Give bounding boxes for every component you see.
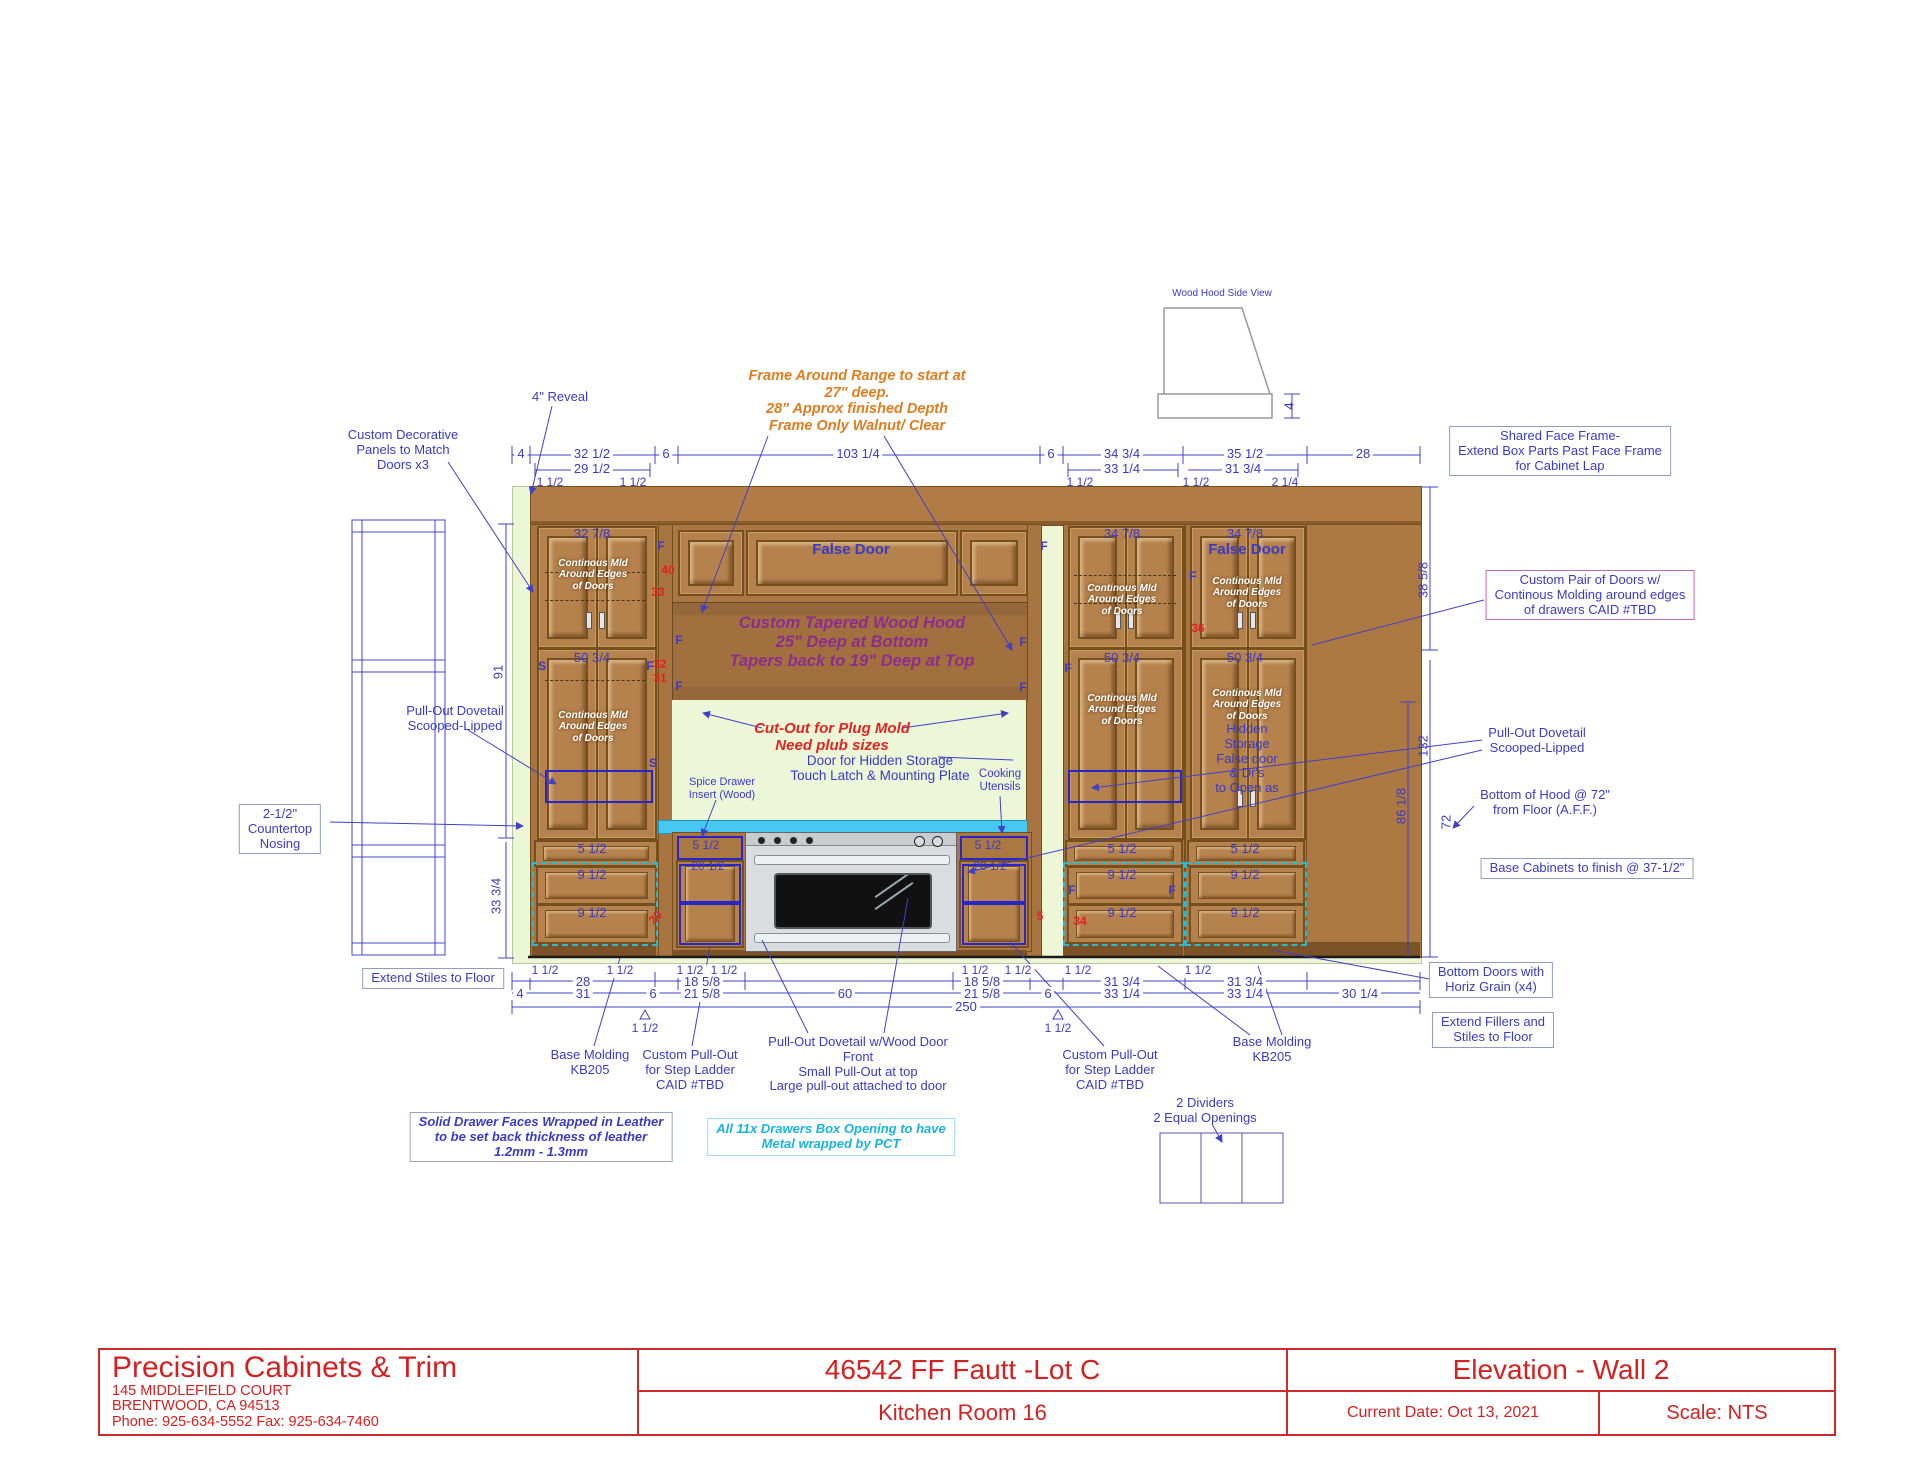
wood-hood-side-view-sketch [1158, 308, 1272, 418]
dim-total: 250 [952, 1000, 980, 1015]
dim: 6 [1041, 987, 1054, 1002]
stile-letter: F [1019, 636, 1026, 650]
door-dim: 50 3/4 [1104, 651, 1140, 666]
dim-72: 72 [1440, 815, 1455, 829]
divider-sketch [1160, 1133, 1283, 1203]
dim: 33 1/4 [1224, 987, 1266, 1002]
base-finish-note: Base Cabinets to finish @ 37-1/2" [1481, 858, 1694, 879]
continuous-molding-note: Continous Mld Around Edges of Doors [1212, 688, 1281, 722]
dim: 1 1/2 [1067, 476, 1094, 490]
continuous-molding-note: Continous Mld Around Edges of Doors [558, 710, 627, 744]
dim: 1 1/2 [537, 476, 564, 490]
dim: 6 [659, 447, 672, 462]
company-name: Precision Cabinets & Trim [112, 1352, 637, 1384]
spice-pullout-2 [679, 903, 741, 945]
false-door-label: False Door [1208, 541, 1286, 558]
countertop-nosing-note: 2-1/2" Countertop Nosing [239, 804, 321, 854]
pullout-dovetail-note-left: Pull-Out Dovetail Scooped-Lipped [406, 704, 504, 734]
pct-note: All 11x Drawers Box Opening to have Meta… [707, 1118, 955, 1156]
dim: 4 [514, 447, 527, 462]
dim: 1 1/2 [1182, 964, 1215, 978]
drawer-dim: 5 1/2 [1231, 842, 1260, 857]
extend-stiles-note: Extend Stiles to Floor [362, 968, 504, 989]
ref-num: 5 [1037, 910, 1044, 924]
range-knob [914, 836, 925, 847]
dim: 6 [1044, 447, 1057, 462]
range-knob [774, 837, 781, 844]
dim-91: 91 [492, 665, 507, 679]
dividers-note: 2 Dividers 2 Equal Openings [1153, 1096, 1256, 1126]
company-address1: 145 MIDDLEFIELD COURT [112, 1384, 637, 1400]
stile-letter: F [1064, 662, 1071, 676]
continuous-molding-note: Continous Mld Around Edges of Doors [558, 558, 627, 592]
continuous-molding-note: Continous Mld Around Edges of Doors [1087, 693, 1156, 727]
continuous-molding-note: Continous Mld Around Edges of Doors [1087, 583, 1156, 617]
scale-cell: Scale: NTS [1598, 1390, 1834, 1434]
header-panel-left [678, 530, 744, 596]
dim-132: 132 [1417, 735, 1432, 757]
drawer-dim: 20 1/2 [691, 860, 724, 874]
dim: 2 1/4 [1272, 476, 1299, 490]
title-block: Precision Cabinets & Trim 145 MIDDLEFIEL… [98, 1348, 1836, 1436]
range-knob [932, 836, 943, 847]
door-dim: 50 3/4 [574, 651, 610, 666]
hidden-door-note: Door for Hidden Storage Touch Latch & Mo… [790, 753, 969, 784]
view-cell: Elevation - Wall 2 [1286, 1350, 1834, 1390]
dim: 33 1/4 [1101, 462, 1143, 477]
dim: 29 1/2 [571, 462, 613, 477]
extend-fillers-note: Extend Fillers and Stiles to Floor [1432, 1012, 1554, 1048]
stile-letter: F [657, 540, 664, 554]
ref-num: 34 [1073, 915, 1086, 929]
dim: 33 1/4 [1101, 987, 1143, 1002]
dim: 31 3/4 [1222, 462, 1264, 477]
dim: 4 [513, 987, 526, 1002]
drawer-dim: 9 1/2 [1108, 906, 1137, 921]
false-door-label: False Door [812, 541, 890, 558]
dim: 28 [1353, 447, 1373, 462]
range-knob [806, 837, 813, 844]
ref-num: 36 [1191, 622, 1204, 636]
dim-86-18: 86 1/8 [1395, 788, 1410, 824]
dim: 103 1/4 [833, 447, 882, 462]
stile-letter: F [1189, 570, 1196, 584]
door-handle [1250, 612, 1256, 629]
utensil-pullout-2 [962, 903, 1026, 945]
right-filler-panel [1305, 524, 1422, 958]
drawing-sheet: Wood Hood Side View 4" Reveal Frame Arou… [0, 0, 1920, 1484]
drawer-dim: 5 1/2 [693, 839, 720, 853]
view-name: Elevation - Wall 2 [1453, 1354, 1670, 1386]
frame-around-range-note: Frame Around Range to start at 27" deep.… [749, 368, 966, 434]
dim: 21 5/8 [681, 987, 723, 1002]
oven-lower-bar [754, 933, 950, 943]
drawer-dim: 5 1/2 [975, 839, 1002, 853]
false-door-panel [746, 530, 958, 596]
spice-drawer-note: Spice Drawer Insert (Wood) [689, 776, 755, 801]
dim: 1 1/2 [604, 964, 637, 978]
stile-letter: F [1068, 884, 1075, 898]
dim: 1 1/2 [529, 964, 562, 978]
shelf-line [545, 680, 645, 681]
dim-33-34: 33 3/4 [490, 878, 505, 914]
dim: 60 [835, 987, 855, 1002]
dim: 35 1/2 [1224, 447, 1266, 462]
col1-lower-door-right [1125, 648, 1184, 840]
range [745, 832, 957, 952]
dim: 32 1/2 [571, 447, 613, 462]
dim: 1 1/2 [1183, 476, 1210, 490]
stile-letter: F [1019, 681, 1026, 695]
hidden-storage-note: Hidden Storage False door & Dr's to Open… [1215, 722, 1279, 796]
job-cell: 46542 FF Fautt -Lot C [637, 1350, 1286, 1390]
bottom-of-hood-note: Bottom of Hood @ 72" from Floor (A.F.F.) [1480, 788, 1610, 818]
door-handle [1237, 612, 1243, 629]
company-address2: BRENTWOOD, CA 94513 [112, 1399, 637, 1415]
shared-face-frame-note: Shared Face Frame- Extend Box Parts Past… [1449, 426, 1671, 476]
drawer-dim: 20 1/2 [973, 860, 1006, 874]
hood-depth-dim: 4 [1283, 402, 1298, 409]
drawer-dim: 9 1/2 [1231, 906, 1260, 921]
dim: 1 1/2 [620, 476, 647, 490]
drawer-dim: 9 1/2 [1231, 868, 1260, 883]
shelf-line [545, 600, 645, 601]
drawer-dim: 9 1/2 [578, 868, 607, 883]
dim: 31 [573, 987, 593, 1002]
dim: 6 [646, 987, 659, 1002]
reveal-label: 4" Reveal [532, 390, 588, 405]
dim: 1 1/2 [1002, 964, 1035, 978]
pullout-dovetail-note-right: Pull-Out Dovetail Scooped-Lipped [1488, 726, 1586, 756]
custom-decorative-note: Custom Decorative Panels to Match Doors … [348, 428, 459, 472]
bottom-doors-note: Bottom Doors with Horiz Grain (x4) [1429, 962, 1553, 998]
dovetail-wood-door-note: Pull-Out Dovetail w/Wood Door Front Smal… [768, 1035, 948, 1094]
ref-num: 33 [651, 586, 664, 600]
hood-note: Custom Tapered Wood Hood 25" Deep at Bot… [729, 614, 974, 670]
dim: 34 3/4 [1101, 447, 1143, 462]
dim: 1 1/2 [632, 1022, 659, 1036]
drawer-dim: 5 1/2 [1108, 842, 1137, 857]
door-dim: 32 7/8 [574, 527, 610, 542]
plug-mold-note: Cut-Out for Plug Mold Need plub sizes [754, 720, 910, 754]
door-dim: 34 7/8 [1104, 527, 1140, 542]
stile-letter: F [675, 634, 682, 648]
range-knob [758, 837, 765, 844]
wood-hood-side-view-label: Wood Hood Side View [1172, 288, 1272, 299]
header-panel-right [960, 530, 1028, 596]
door-handle [599, 612, 605, 629]
range-knob [790, 837, 797, 844]
stile-letter: F [675, 680, 682, 694]
cooking-utensils-note: Cooking Utensils [979, 768, 1021, 794]
door-dim: 34 7/8 [1227, 527, 1263, 542]
stile-letter: S [538, 660, 546, 674]
dim: 1 1/2 [1045, 1022, 1072, 1036]
ref-num: 31 [653, 672, 666, 686]
door-handle [586, 612, 592, 629]
continuous-molding-note: Continous Mld Around Edges of Doors [1212, 576, 1281, 610]
decorative-panel-sketch [352, 520, 445, 955]
oven-handle [754, 855, 950, 865]
ref-num: 32 [653, 658, 666, 672]
pullout-highlight [545, 770, 653, 803]
scale-value: Scale: NTS [1666, 1402, 1767, 1425]
shelf-line [1074, 575, 1176, 576]
drawer-dim: 9 1/2 [1108, 868, 1137, 883]
job-number: 46542 FF Fautt -Lot C [825, 1354, 1100, 1386]
step-ladder-note-left: Custom Pull-Out for Step Ladder CAID #TB… [642, 1048, 737, 1092]
dim: 1 1/2 [1062, 964, 1095, 978]
company-phone: Phone: 925-634-5552 Fax: 925-634-7460 [112, 1415, 637, 1431]
stile-letter: F [1040, 540, 1047, 554]
oven-window [774, 873, 932, 929]
custom-pair-doors-note: Custom Pair of Doors w/ Continous Moldin… [1486, 570, 1695, 620]
base-molding-note-right: Base Molding KB205 [1233, 1035, 1312, 1065]
current-date: Current Date: Oct 13, 2021 [1347, 1404, 1539, 1422]
drawer-dim: 9 1/2 [578, 906, 607, 921]
room-cell: Kitchen Room 16 [637, 1390, 1286, 1434]
leather-note: Solid Drawer Faces Wrapped in Leather to… [410, 1112, 673, 1162]
ref-num: 40 [661, 564, 674, 578]
pullout-highlight [1068, 770, 1182, 803]
crown-molding [530, 486, 1422, 526]
glass-shine [875, 882, 914, 910]
base-molding-note-left: Base Molding KB205 [551, 1048, 630, 1078]
room-name: Kitchen Room 16 [878, 1400, 1047, 1426]
drawer-dim: 5 1/2 [578, 842, 607, 857]
date-cell: Current Date: Oct 13, 2021 [1286, 1390, 1598, 1434]
company-cell: Precision Cabinets & Trim 145 MIDDLEFIEL… [100, 1350, 637, 1434]
dim-38-58: 38 5/8 [1417, 562, 1432, 598]
stile-letter: F [1168, 884, 1175, 898]
filler-toe-kick [1305, 942, 1420, 956]
step-ladder-note-right: Custom Pull-Out for Step Ladder CAID #TB… [1062, 1048, 1157, 1092]
stile-letter: F [646, 660, 653, 674]
col1-lower-door-left [1068, 648, 1127, 840]
dim: 30 1/4 [1339, 987, 1381, 1002]
stile-letter: S [649, 757, 657, 771]
door-dim: 50 3/4 [1227, 651, 1263, 666]
